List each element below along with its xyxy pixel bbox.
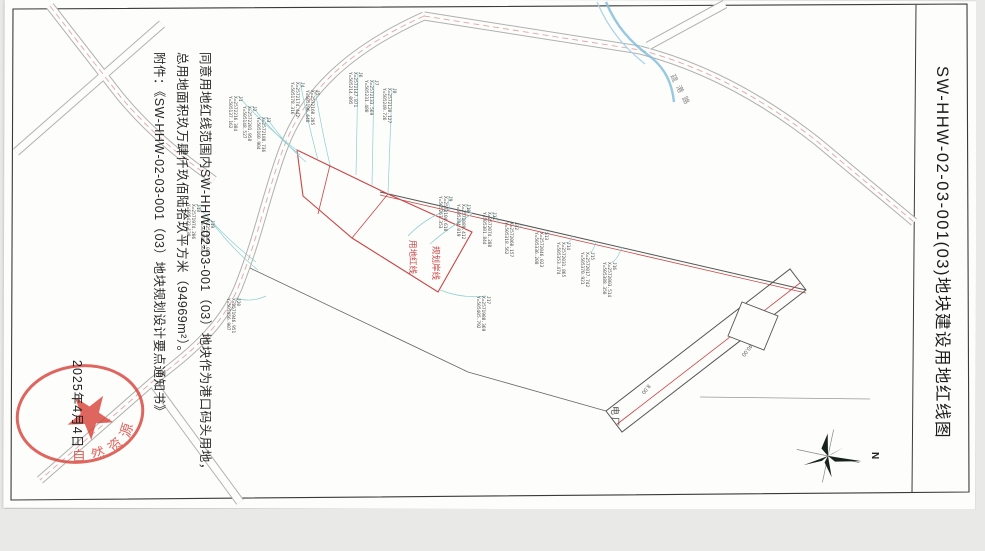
coordinate-label-line: Y=505267.353 [437, 196, 443, 229]
redline-subdivision-1 [352, 194, 388, 238]
seawall-line [700, 397, 870, 399]
approval-date: 2025年4月4日 [69, 360, 88, 448]
coordinate-label: J3X=2572188.736Y=505160.904 [255, 117, 271, 153]
coordinate-label: J17X=2571988.369Y=505405.792 [475, 296, 491, 332]
coordinate-label: J10X=2572089.412Y=505284.019 [455, 204, 471, 240]
approval-text: 同意用地红线范围内SW-HHW-02-03-001（03）地块作为港口码头用地，… [147, 52, 216, 462]
title-block-divider [912, 5, 916, 493]
coordinate-label-line: Y=505231.480 [363, 80, 369, 113]
north-label: N [869, 452, 880, 459]
leader-line [315, 90, 330, 165]
coordinate-label-line: Y=505160.904 [255, 117, 261, 150]
coordinate-label-line: Y=505318.562 [503, 222, 509, 255]
lower-boundary-line [250, 268, 606, 411]
coordinate-label-line: Y=505301.844 [481, 212, 487, 245]
compass [791, 423, 867, 490]
coordinate-label-line: Y=505137.162 [227, 96, 233, 129]
coordinate-label-line: Y=505336.208 [533, 232, 539, 265]
coordinate-label-line: Y=505196.648 [304, 90, 310, 123]
wharf-strip [606, 269, 806, 432]
coordinate-label: J13X=2572046.023Y=505336.208 [533, 232, 549, 268]
dimension-label-1: 40.00 [740, 343, 753, 358]
wharf-redline [616, 283, 800, 425]
approval-line-1: 同意用地红线范围内SW-HHW-02-03-001（03）地块作为港口码头用地， [193, 52, 216, 462]
coordinate-label-line: Y=505353.474 [555, 242, 561, 275]
scanned-sheet: 用地红线 规划岸线 疏港路 电厂 40.00 8.00 J1X=2572216.… [0, 0, 985, 551]
stream-bank [597, 2, 645, 64]
compass-star [802, 430, 866, 483]
dimension-label-2: 8.00 [640, 383, 651, 395]
coordinate-label: J9X=2572104.618Y=505267.353 [437, 196, 453, 232]
coordinate-label: J20X=2571946.951Y=505456.907 [225, 298, 241, 334]
coordinate-label: J16X=2572003.514Y=505388.350 [601, 262, 617, 298]
redline-subdivision-2 [318, 165, 330, 214]
coordinate-label-line: Y=505388.350 [601, 262, 607, 295]
redline-label-2: 规划岸线 [431, 246, 441, 281]
coordinate-label-line: Y=505284.019 [455, 204, 461, 237]
building-footprint [728, 302, 778, 350]
coordinate-label-line: Y=505456.907 [225, 298, 231, 331]
coordinate-label: J5X=2572160.205Y=505196.648 [304, 90, 320, 126]
road-right-diagonal [640, 50, 914, 222]
coordinate-callouts: J1X=2572216.384Y=505137.162J2X=2572201.9… [185, 72, 622, 334]
leader-line [590, 241, 596, 252]
coordinate-label: J11X=2572074.288Y=505301.844 [481, 212, 497, 248]
coordinate-label: J6X=2572147.871Y=505214.095 [347, 72, 363, 108]
coordinate-label-line: Y=505405.792 [475, 296, 481, 329]
coordinate-label: J1X=2572216.384Y=505137.162 [227, 96, 243, 132]
coordinate-label-line: Y=505178.316 [289, 82, 295, 115]
redline-label-1: 用地红线 [408, 240, 418, 275]
coordinate-label: J2X=2572201.958Y=505148.527 [241, 106, 257, 142]
coordinate-label-line: Y=505214.095 [347, 72, 353, 105]
site-label: 电厂 [610, 406, 621, 428]
coordinate-label-line: Y=505370.921 [579, 252, 585, 285]
coordinate-label: J14X=2572031.865Y=505353.474 [555, 242, 571, 278]
coordinate-label: J8X=2572120.127Y=505249.726 [381, 88, 397, 124]
coordinate-label-line: Y=505148.527 [241, 106, 247, 139]
coordinate-label: J15X=2572017.742Y=505370.921 [579, 252, 595, 288]
coordinate-label-line: Y=505249.726 [381, 88, 387, 121]
sheet-title: SW-HHW-02-03-001(03)地块建设用地红线图 [932, 66, 956, 446]
approval-line-3: 附件：《SW-HHW-02-03-001（03）地块规划设计要点通知书》 [147, 52, 170, 462]
coordinate-label: J7X=2572133.569Y=505231.480 [363, 80, 379, 116]
scan-margin-right [976, 0, 985, 551]
scan-margin-bottom [0, 509, 985, 551]
approval-line-2: 总用地面积玖万肆仟玖佰陆拾玖平方米（94969m²）。 [170, 52, 193, 462]
coordinate-label: J12X=2572060.157Y=505318.562 [503, 222, 519, 258]
